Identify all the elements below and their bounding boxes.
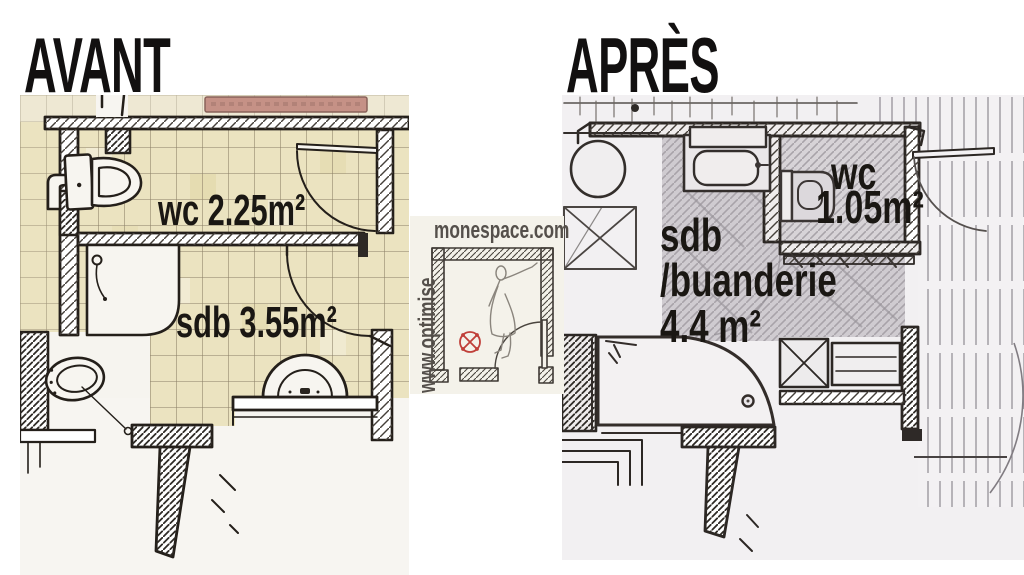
avant-title: AVANT	[24, 26, 170, 104]
watermark-vertical-text: www.optimise	[416, 277, 440, 393]
apres-floorplan-sketch	[562, 95, 1024, 560]
apres-sdb-label-line3: 4.4 m²	[660, 303, 761, 349]
apres-sdb-label-line2: /buanderie	[660, 257, 837, 303]
sink-unit-icon	[684, 127, 770, 191]
shower-icon	[87, 245, 179, 335]
before-after-floorplan-image: AVANT APRÈS wc 2.25m² sdb 3.55m² wc 1.05…	[0, 0, 1024, 575]
avant-sdb-area-label: sdb 3.55m²	[176, 301, 337, 345]
apres-sdb-label-line1: sdb	[660, 212, 722, 258]
avant-wc-area-label: wc 2.25m²	[158, 189, 305, 233]
tile-patch-under-sdb	[150, 398, 235, 426]
apres-title: APRÈS	[566, 26, 719, 104]
laundry-fixtures	[780, 339, 904, 404]
bathtub-above-icon	[205, 97, 367, 112]
apres-wc-label-line2: 1.05m²	[816, 184, 924, 230]
watermark-site-text: monespace.com	[434, 219, 569, 243]
